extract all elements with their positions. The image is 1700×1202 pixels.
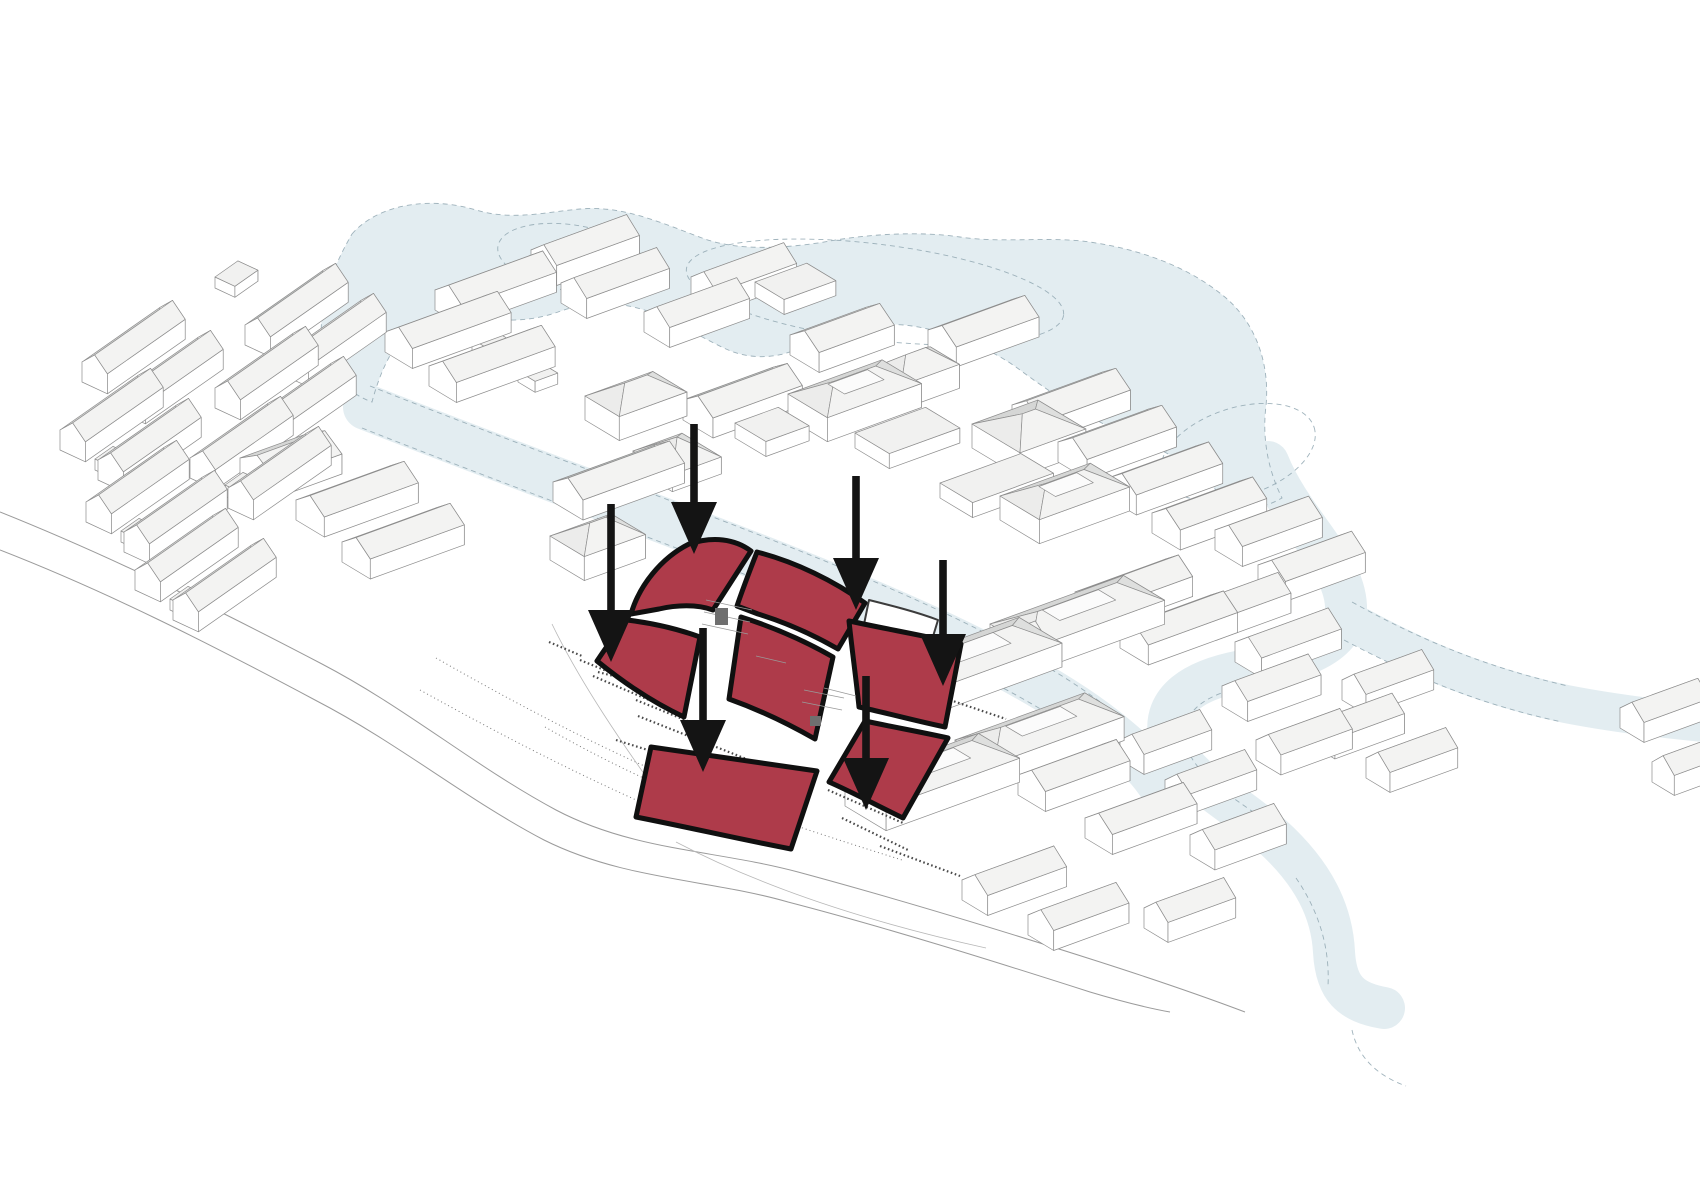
diagram-root bbox=[0, 0, 1700, 1202]
site-facade-ticks-0 bbox=[549, 642, 582, 656]
site-plinth-1 bbox=[676, 842, 986, 948]
building bbox=[1144, 878, 1236, 943]
building bbox=[585, 371, 687, 440]
building bbox=[215, 261, 258, 297]
water-edge-dash-6 bbox=[1352, 1030, 1406, 1086]
building bbox=[1256, 709, 1352, 775]
courtyard-hatch-1 bbox=[810, 716, 821, 726]
site-roof-top-left bbox=[631, 540, 751, 614]
site-layer bbox=[549, 540, 1006, 948]
site-roof-bottom bbox=[636, 747, 817, 849]
courtyard-hatch-0 bbox=[715, 608, 728, 625]
building bbox=[1652, 733, 1700, 795]
site-facade-ticks-10 bbox=[950, 700, 1006, 719]
site-facade-ticks-9 bbox=[880, 846, 960, 876]
building bbox=[962, 846, 1067, 916]
scene bbox=[0, 0, 1700, 1202]
